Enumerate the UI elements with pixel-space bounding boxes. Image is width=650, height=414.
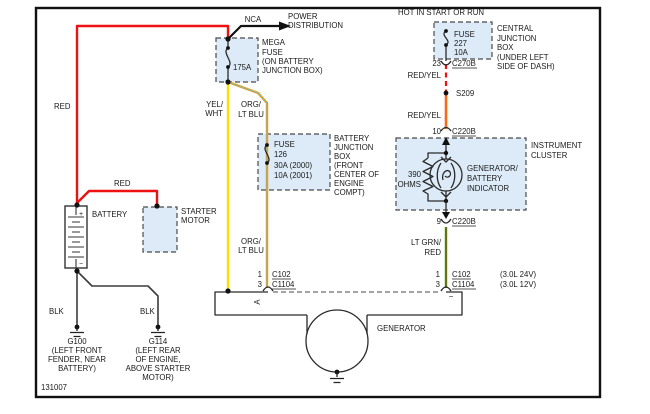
label-g114-3: OF ENGINE,: [135, 355, 180, 364]
connector-c1104-right: C1104: [452, 280, 475, 289]
diagram-id: 131007: [41, 383, 67, 392]
battery-minus: −: [79, 261, 83, 268]
wire-label-ltgrnred-1: LT GRN/: [411, 238, 442, 247]
connector-c220b-bot: C220B: [452, 217, 476, 226]
label-starter-2: MOTOR: [181, 216, 210, 225]
label-cjb-fuse-2: 227: [454, 39, 467, 48]
label-bjb-6: ENGINE: [334, 179, 364, 188]
label-megafuse-4: JUNCTION BOX): [262, 66, 323, 75]
wire-label-orgltblu-2a: ORG/: [241, 237, 262, 246]
wire-label-orgltblu-1b: LT BLU: [238, 110, 264, 119]
splice-s209-dot: [444, 91, 449, 96]
label-bjb-7: COMPT): [334, 188, 365, 197]
label-cjb-5: SIDE OF DASH): [497, 62, 555, 71]
label-bjb-fuse-3: 30A (2000): [274, 161, 313, 170]
label-bjb-3: BOX: [334, 152, 351, 161]
connector-c1104-left: C1104: [272, 280, 295, 289]
wire-label-orgltblu-1a: ORG/: [241, 100, 262, 109]
wire-label-red-branch: RED: [114, 179, 131, 188]
header-hot-in-start: HOT IN START OR RUN: [398, 8, 484, 17]
starter-motor-box: [143, 207, 177, 252]
label-bjb-fuse-4: 10A (2001): [274, 171, 313, 180]
label-bjb-1: BATTERY: [334, 134, 370, 143]
label-starter-1: STARTER: [181, 207, 217, 216]
label-cjb-3: BOX: [497, 43, 514, 52]
connector-c220b-top: C220B: [452, 127, 476, 136]
label-g114-4: ABOVE STARTER: [126, 364, 191, 373]
label-megafuse-3: (ON BATTERY: [262, 57, 314, 66]
label-g100-4: BATTERY): [58, 364, 96, 373]
junction-dot: [444, 151, 448, 155]
label-nca: NCA: [245, 15, 262, 24]
pin-gen-right-3: 3: [436, 280, 440, 289]
wire-label-redyel-2: RED/YEL: [408, 111, 442, 120]
wire-label-ltgrnred-2: RED: [425, 248, 442, 257]
label-power-dist-1: POWER: [288, 12, 318, 21]
label-bjb-4: (FRONT: [334, 161, 364, 170]
label-cluster-2: CLUSTER: [531, 151, 568, 160]
label-indicator-3: INDICATOR: [467, 184, 510, 193]
pin-23: 23: [432, 59, 441, 68]
pin-gen-right-1: 1: [436, 270, 440, 279]
label-megafuse-2: FUSE: [262, 48, 283, 57]
wiring-diagram-svg: HOT IN START OR RUN NCA POWER DISTRIBUTI…: [0, 0, 650, 414]
wire-label-yelwht-1: YEL/: [206, 100, 224, 109]
label-bjb-2: JUNCTION: [334, 143, 373, 152]
label-megafuse-rating: 175A: [233, 63, 252, 72]
wiring-diagram-page: HOT IN START OR RUN NCA POWER DISTRIBUTI…: [0, 0, 650, 414]
label-cjb-4: (UNDER LEFT: [497, 53, 549, 62]
battery-plus: +: [79, 211, 83, 218]
connector-c102-right: C102: [452, 270, 471, 279]
label-g100-1: G100: [67, 337, 87, 346]
label-engine-24v: (3.0L 24V): [500, 270, 537, 279]
label-engine-12v: (3.0L 12V): [500, 280, 537, 289]
pin-9: 9: [437, 217, 441, 226]
wire-label-orgltblu-2b: LT BLU: [238, 246, 264, 255]
generator-terminal-minus: −: [449, 292, 454, 301]
label-g100-3: FENDER, NEAR: [48, 355, 106, 364]
label-cluster-1: INSTRUMENT: [531, 141, 582, 150]
pin-gen-left-1: 1: [258, 270, 262, 279]
pin-10: 10: [432, 127, 441, 136]
mega-fuse-box: [216, 38, 258, 82]
label-g100-2: (LEFT FRONT: [52, 346, 103, 355]
label-cjb-fuse-1: FUSE: [454, 30, 475, 39]
battery-symbol: [65, 206, 87, 271]
wire-label-blk-2: BLK: [140, 307, 156, 316]
label-g114-2: (LEFT REAR: [135, 346, 181, 355]
label-resistor-unit: OHMS: [398, 180, 421, 189]
generator-terminal-a: A: [253, 299, 262, 305]
wire-label-blk-1: BLK: [49, 307, 65, 316]
label-power-dist-2: DISTRIBUTION: [288, 21, 343, 30]
label-bjb-fuse-2: 126: [274, 150, 287, 159]
label-g114-5: MOTOR): [142, 373, 174, 382]
label-megafuse-1: MEGA: [262, 38, 286, 47]
label-bjb-fuse-1: FUSE: [274, 140, 295, 149]
label-cjb-1: CENTRAL: [497, 24, 534, 33]
label-cjb-fuse-3: 10A: [454, 48, 469, 57]
connector-c270b: C270B: [452, 59, 476, 68]
wire-label-red-main: RED: [54, 102, 71, 111]
wire-label-redyel-1: RED/YEL: [408, 71, 442, 80]
label-g114-1: G114: [149, 337, 168, 346]
connector-c102-left: C102: [272, 270, 291, 279]
label-indicator-1: GENERATOR/: [467, 164, 519, 173]
pin-gen-left-3: 3: [258, 280, 262, 289]
label-bjb-5: CENTER OF: [334, 170, 379, 179]
label-battery: BATTERY: [92, 210, 128, 219]
wire-label-yelwht-2: WHT: [205, 109, 223, 118]
label-generator: GENERATOR: [377, 324, 426, 333]
label-s209: S209: [456, 89, 474, 98]
label-resistor-value: 390: [408, 170, 422, 179]
label-cjb-2: JUNCTION: [497, 34, 536, 43]
label-indicator-2: BATTERY: [467, 174, 503, 183]
